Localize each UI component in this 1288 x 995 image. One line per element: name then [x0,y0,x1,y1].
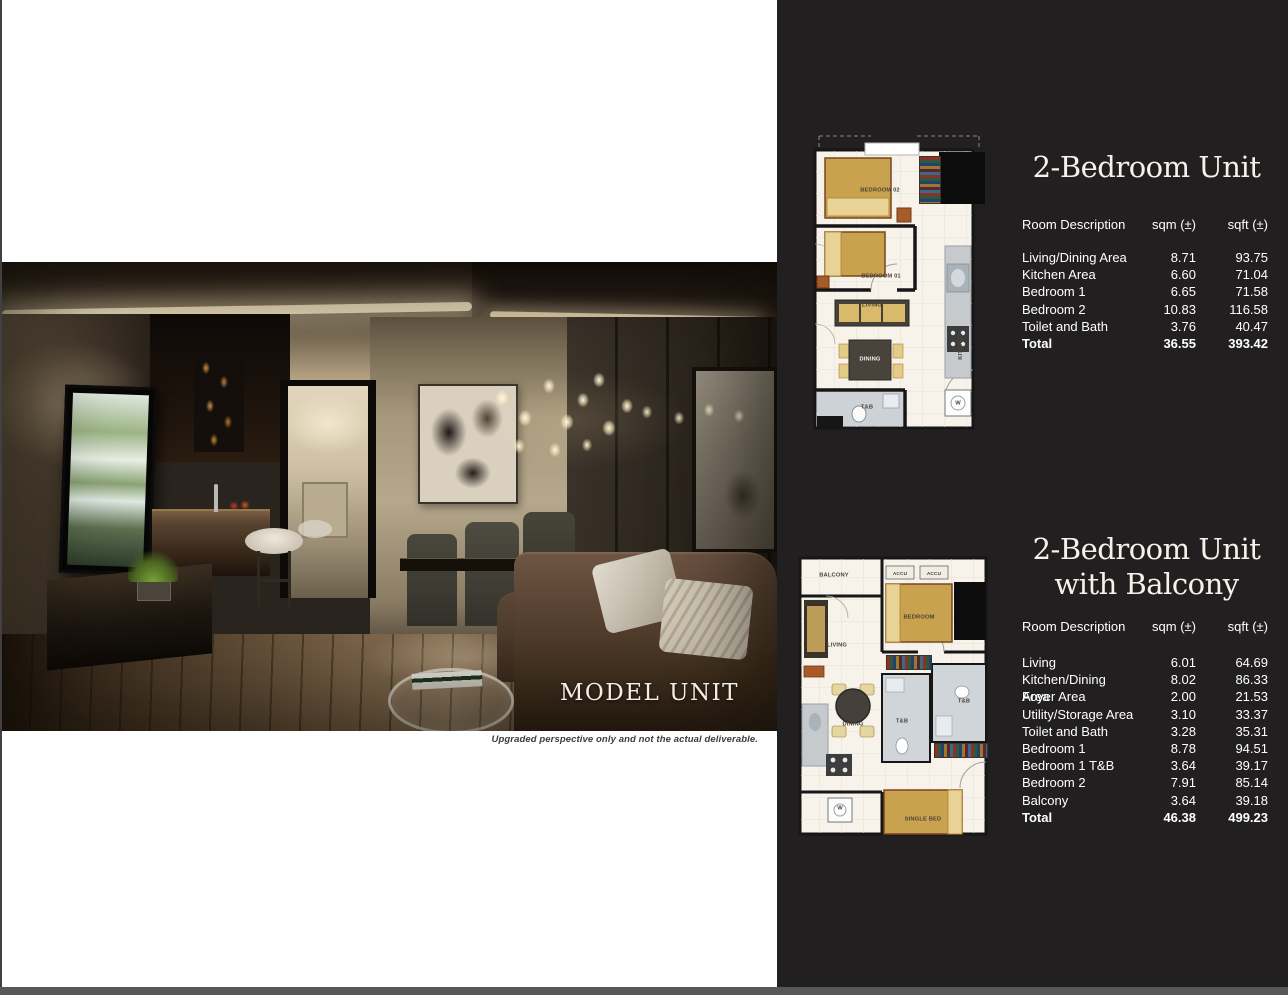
room-name: Bedroom 1 [1022,283,1134,300]
plan2-label-toilet2: T&B [951,697,977,703]
room-sqm: 6.01 [1134,654,1196,671]
table-row: Bedroom 2 7.91 85.14 [1022,774,1268,791]
room-name: Foyer Area [1022,688,1134,705]
plan1-label-living: LIVING [850,301,893,307]
page-bottom-bar [0,987,1288,995]
room-sqft: 21.53 [1196,688,1268,705]
plan2-label-living: LIVING [820,641,853,647]
table-row: Living 6.01 64.69 [1022,654,1268,671]
plan2-closet-icon [886,655,932,670]
room-name: Toilet and Bath [1022,318,1134,335]
floorplan-2br-drawing [813,128,987,432]
table-row: Toilet and Bath 3.28 35.31 [1022,723,1268,740]
photo-disclaimer: Upgraded perspective only and not the ac… [0,734,758,745]
col-sqft: sqft (±) [1196,216,1268,233]
unit2-title: 2-Bedroom Unit with Balcony [1014,532,1279,602]
col-sqft: sqft (±) [1196,618,1268,635]
col-sqm: sqm (±) [1134,618,1196,635]
unit1-table-header: Room Description sqm (±) sqft (±) [1022,216,1268,233]
room-name: Kitchen/Dining Area [1022,671,1134,688]
room-sqft: 40.47 [1196,318,1268,335]
plan1-label-toilet: T&B [853,403,882,409]
room-sqm: 6.60 [1134,266,1196,283]
room-sqft: 393.42 [1196,335,1268,352]
unit2-title-line1: 2-Bedroom Unit [1014,532,1279,567]
room-name: Total [1022,809,1134,826]
table-row: Toilet and Bath 3.76 40.47 [1022,318,1268,335]
room-name: Balcony [1022,792,1134,809]
room-name: Bedroom 1 T&B [1022,757,1134,774]
room-sqft: 85.14 [1196,774,1268,791]
brochure-page: MODEL UNIT Upgraded perspective only and… [0,0,1288,995]
unit2-table: Room Description sqm (±) sqft (±) Living… [1022,618,1268,826]
table-row-total: Total 46.38 499.23 [1022,809,1268,826]
table-row-total: Total 36.55 393.42 [1022,335,1268,352]
plan2-label-dining: DINING [835,720,871,726]
plan2-closet2-icon [934,743,988,758]
room-sqft: 94.51 [1196,740,1268,757]
room-sqm: 6.65 [1134,283,1196,300]
room-sqft: 116.58 [1196,301,1268,318]
plan2-label-washer: W [834,804,846,810]
room-sqm: 36.55 [1134,335,1196,352]
plan2-label-single-bed: SINGLE BED [895,815,951,821]
room-sqft: 33.37 [1196,706,1268,723]
photo-vignette [2,262,777,731]
room-sqft: 71.58 [1196,283,1268,300]
room-sqft: 86.33 [1196,671,1268,688]
room-name: Bedroom 1 [1022,740,1134,757]
room-sqm: 3.10 [1134,706,1196,723]
floorplan-2-bedroom-unit-with-balcony: BALCONY ACCU ACCU BEDROOM LIVING DINING … [798,556,988,836]
col-sqm: sqm (±) [1134,216,1196,233]
plan1-label-bedroom2: BEDROOM 02 [850,186,910,192]
col-room-description: Room Description [1022,618,1134,635]
room-name: Utility/Storage Area [1022,706,1134,723]
room-sqft: 64.69 [1196,654,1268,671]
room-name: Kitchen Area [1022,266,1134,283]
unit1-table: Room Description sqm (±) sqft (±) Living… [1022,216,1268,352]
room-name: Bedroom 2 [1022,301,1134,318]
unit1-title: 2-Bedroom Unit [1009,150,1284,184]
unit-info-panel: BEDROOM 02 BEDROOM 01 LIVING DINING T&B … [777,0,1288,995]
plan1-closet-icon [919,156,941,204]
table-row: Bedroom 1 T&B 3.64 39.17 [1022,757,1268,774]
room-sqm: 3.28 [1134,723,1196,740]
plan2-label-toilet1: T&B [891,717,913,723]
table-row: Kitchen Area 6.60 71.04 [1022,266,1268,283]
room-sqm: 3.64 [1134,792,1196,809]
room-sqm: 2.00 [1134,688,1196,705]
photo-caption: MODEL UNIT [560,680,739,706]
room-name: Living [1022,654,1134,671]
table-row: Bedroom 1 6.65 71.58 [1022,283,1268,300]
model-unit-photo: MODEL UNIT [2,262,777,731]
room-sqft: 35.31 [1196,723,1268,740]
unit2-table-header: Room Description sqm (±) sqft (±) [1022,618,1268,635]
plan2-label-bedroom: BEDROOM [892,613,947,619]
plan2-label-accu1: ACCU [892,571,909,576]
room-sqm: 3.76 [1134,318,1196,335]
room-sqft: 39.18 [1196,792,1268,809]
plan1-label-dining: DINING [848,355,891,361]
unit2-title-line2: with Balcony [1014,567,1279,602]
plan1-label-bedroom1: BEDROOM 01 [852,272,910,278]
table-row: Balcony 3.64 39.18 [1022,792,1268,809]
plan1-label-kitchen: KITCHEN [957,331,963,363]
plan2-label-accu2: ACCU [926,571,943,576]
floorplan-2-bedroom-unit: BEDROOM 02 BEDROOM 01 LIVING DINING T&B … [813,128,987,432]
col-room-description: Room Description [1022,216,1134,233]
room-name: Living/Dining Area [1022,249,1134,266]
room-sqm: 10.83 [1134,301,1196,318]
room-name: Toilet and Bath [1022,723,1134,740]
plan1-label-washer: W [952,399,964,405]
table-row: Living/Dining Area 8.71 93.75 [1022,249,1268,266]
room-sqft: 499.23 [1196,809,1268,826]
table-row: Bedroom 2 10.83 116.58 [1022,301,1268,318]
table-row: Foyer Area 2.00 21.53 [1022,688,1268,705]
room-sqm: 46.38 [1134,809,1196,826]
room-sqm: 3.64 [1134,757,1196,774]
room-sqm: 8.71 [1134,249,1196,266]
plan2-label-balcony: BALCONY [814,571,854,577]
room-sqm: 8.02 [1134,671,1196,688]
room-sqft: 71.04 [1196,266,1268,283]
table-row: Bedroom 1 8.78 94.51 [1022,740,1268,757]
table-row: Utility/Storage Area 3.10 33.37 [1022,706,1268,723]
room-name: Total [1022,335,1134,352]
table-row: Kitchen/Dining Area 8.02 86.33 [1022,671,1268,688]
room-sqft: 93.75 [1196,249,1268,266]
room-sqm: 7.91 [1134,774,1196,791]
floorplan-2br-balcony-drawing [798,556,988,836]
room-name: Bedroom 2 [1022,774,1134,791]
room-sqft: 39.17 [1196,757,1268,774]
room-sqm: 8.78 [1134,740,1196,757]
